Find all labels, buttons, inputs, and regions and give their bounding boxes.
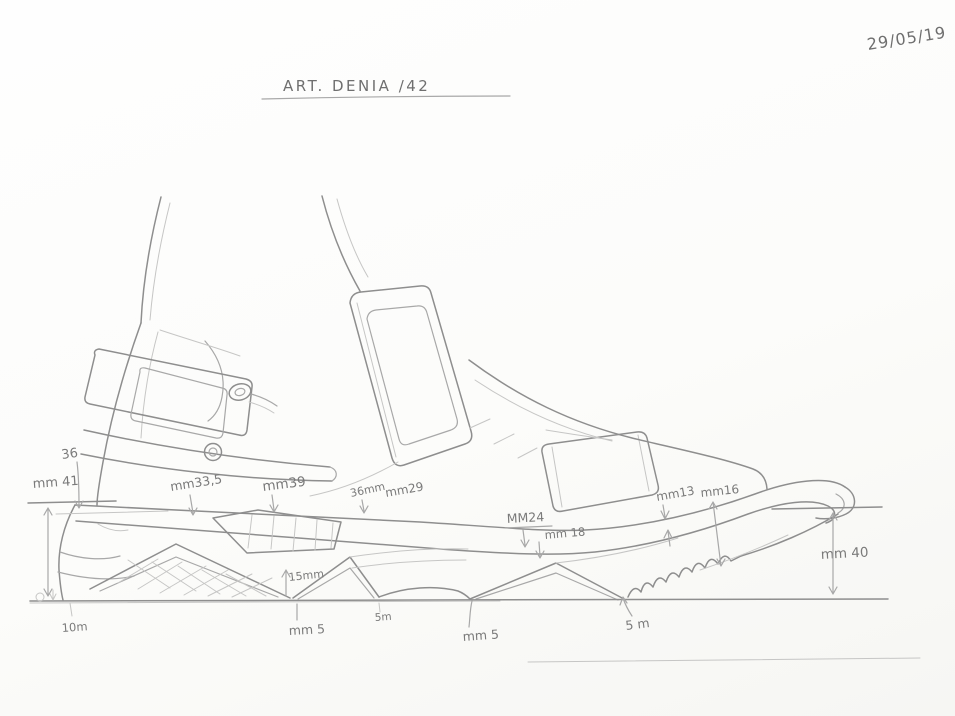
midfoot-arrow — [360, 500, 368, 513]
dimension-label-midfoot-b: mm29 — [384, 479, 425, 499]
heel-layer-line-2 — [58, 572, 134, 579]
forefoot-a-arrow — [521, 530, 529, 547]
instep-strap-pad — [367, 306, 457, 445]
vamp-group — [310, 360, 767, 496]
arch-sole-arrow — [270, 495, 278, 512]
toe-serration — [628, 556, 741, 597]
dimension-label-arch-clearance: 15mm — [288, 567, 325, 584]
leg-outline-group — [97, 196, 368, 505]
buckle-ring-inner — [234, 387, 245, 396]
window-hatch-5 — [331, 523, 333, 548]
header-group: 29/05/19 ART. DENIA /42 — [262, 23, 948, 99]
leg-back-echo — [150, 203, 170, 320]
lug-2-leader — [379, 603, 380, 612]
heel-sole-arrow — [189, 495, 197, 515]
dimension-label-lug-3: mm 5 — [462, 626, 499, 643]
strap-eyelet — [205, 444, 222, 461]
dimension-label-lug-2: 5m — [374, 611, 392, 624]
leg-front-echo — [337, 199, 368, 277]
chevron-forefoot-inner — [476, 573, 618, 600]
ankle-curve — [205, 341, 223, 421]
lower-faint-line — [528, 658, 920, 662]
buckle-ring — [227, 381, 252, 402]
page-title: ART. DENIA /42 — [283, 77, 430, 95]
toe-strap-stitch-right — [638, 435, 649, 491]
toe-top-ref-line — [772, 507, 882, 509]
vamp-hatch-2 — [494, 434, 514, 444]
straps-group — [81, 286, 658, 512]
lower-strap-end — [330, 467, 336, 481]
dimension-label-heel-lug: 10m — [61, 619, 88, 635]
vamp-outline — [469, 360, 767, 489]
sketch-sheet: 29/05/19 ART. DENIA /42 — [0, 0, 955, 716]
instep-strap-stitch — [357, 303, 396, 457]
heel-collar-curve — [160, 330, 240, 356]
heel-lug-leader — [70, 603, 72, 616]
window-hatch-1 — [248, 515, 252, 548]
toe-strap-outline — [542, 432, 659, 512]
heel-strap-pad — [131, 368, 227, 438]
dimension-label-lug-4: 5 m — [625, 615, 651, 633]
toe-strap-stitch-left — [552, 447, 562, 507]
sandal-sketch-canvas: 29/05/19 ART. DENIA /42 — [0, 0, 955, 716]
instep-strap-outline — [350, 286, 472, 466]
dimension-label-toe-b: mm16 — [700, 482, 740, 500]
dimension-label-toe-a: mm13 — [655, 483, 696, 503]
strap-tail-bottom — [249, 402, 274, 413]
arch-diagonal-2 — [352, 560, 466, 568]
dimension-label-forefoot-a: MM24 — [506, 509, 544, 526]
midfoot-hump — [379, 588, 470, 599]
heel-layer-line-1 — [60, 552, 120, 559]
heel-top-ref-line — [28, 501, 116, 503]
dimension-label-arch-sole: mm39 — [262, 474, 307, 495]
heel-height-dim-line — [44, 508, 52, 596]
vamp-hatch-1 — [470, 419, 490, 428]
dimension-label-toe-stack: mm 40 — [820, 545, 869, 563]
dimension-label-lug-1: mm 5 — [288, 621, 325, 638]
forefoot-diagonal — [556, 538, 678, 563]
toe-inner-line — [700, 535, 788, 570]
date-annotation: 29/05/19 — [866, 23, 948, 54]
dimension-label-heel-height: mm 41 — [32, 474, 79, 492]
window-hatch-3 — [293, 518, 296, 551]
dimensions-group: 36 mm 41 mm33,5 mm39 36mm mm29 MM24 mm 1… — [32, 446, 869, 644]
dimension-label-back-height: 36 — [60, 446, 78, 463]
sole-group — [58, 481, 855, 600]
vamp-hatch-3 — [518, 448, 537, 458]
window-hatch-4 — [315, 520, 317, 550]
heel-second-ref-line — [56, 511, 168, 514]
dimension-label-heel-sole: mm33,5 — [169, 471, 223, 494]
lug-3-leader — [469, 601, 472, 627]
heel-ground-mark — [36, 593, 44, 601]
leg-front-line — [322, 196, 360, 291]
toe-curl-inner — [836, 494, 844, 513]
strap-eyelet-inner — [209, 448, 217, 456]
toe-a-arrow — [661, 505, 669, 519]
forefoot-b-arrow — [536, 542, 544, 558]
dimension-label-forefoot-b: mm 18 — [544, 524, 586, 541]
title-underline — [262, 96, 510, 99]
vamp-echo — [475, 380, 612, 441]
window-hatch-2 — [271, 516, 274, 549]
